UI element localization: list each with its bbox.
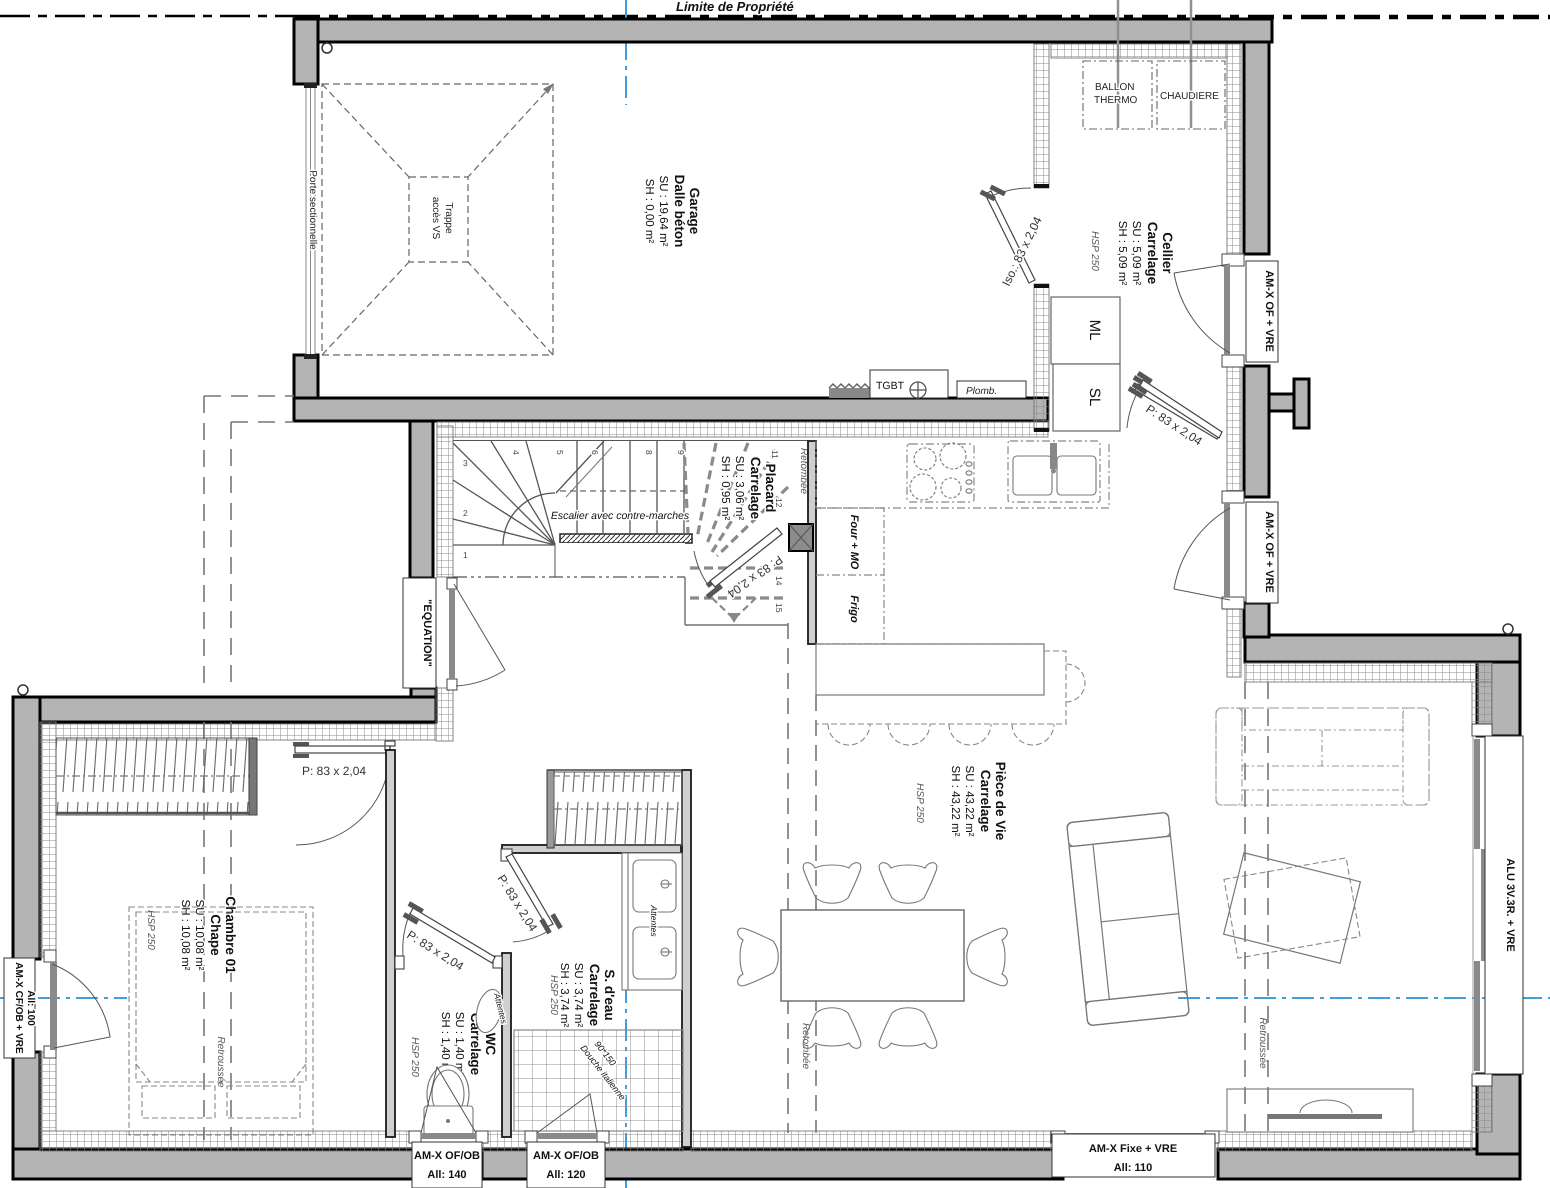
svg-text:HSP 250: HSP 250 [548,975,559,1015]
svg-text:15: 15 [774,603,784,613]
svg-text:AM-X OF/OB: AM-X OF/OB [533,1150,599,1162]
svg-text:HSP 250: HSP 250 [1089,231,1100,271]
svg-text:11: 11 [770,450,780,459]
svg-text:8: 8 [644,450,654,455]
svg-text:TGBT: TGBT [876,380,905,392]
svg-text:HSP 250: HSP 250 [914,783,925,823]
svg-text:AM-X OF + VRE: AM-X OF + VRE [1263,511,1275,593]
svg-text:AM-X Fixe + VRE: AM-X Fixe + VRE [1089,1143,1177,1155]
svg-text:HSP 250: HSP 250 [409,1037,420,1077]
svg-text:AM-X CF/OB + VRE: AM-X CF/OB + VRE [13,962,24,1054]
svg-text:THERMO: THERMO [1094,95,1138,106]
svg-text:2: 2 [463,508,468,518]
svg-text:Retroussée: Retroussée [1257,1017,1268,1069]
svg-text:ALU 3V.3R. + VRE: ALU 3V.3R. + VRE [1504,858,1516,951]
svg-text:1: 1 [463,550,468,560]
svg-text:P: 83 x 2,04: P: 83 x 2,04 [302,764,366,778]
svg-text:5: 5 [555,450,565,455]
svg-text:All: 100: All: 100 [25,990,36,1026]
svg-text:All: 110: All: 110 [1114,1162,1153,1174]
svg-text:Four + MO: Four + MO [848,515,860,570]
svg-text:ML: ML [1086,320,1103,341]
svg-text:Pièce de VieCarrelageSU : 43,2: Pièce de VieCarrelageSU : 43,22 m²SH : 4… [949,762,1008,841]
svg-text:S. d'eauCarrelageSU : 3,74 m²S: S. d'eauCarrelageSU : 3,74 m²SH : 3,74 m… [558,963,617,1028]
svg-text:4: 4 [511,450,521,455]
svg-text:Escalier avec contre-marches: Escalier avec contre-marches [551,510,690,522]
svg-text:6: 6 [590,450,600,455]
svg-text:All: 120: All: 120 [546,1169,585,1181]
svg-text:Retroussée: Retroussée [215,1036,226,1088]
svg-text:PlacardCarrelageSU : 3,06 m²SH: PlacardCarrelageSU : 3,06 m²SH : 0,95 m² [719,456,778,521]
svg-text:AM-X OF/OB: AM-X OF/OB [414,1150,480,1162]
svg-text:Limite de Propriété: Limite de Propriété [676,0,794,14]
svg-text:Porte sectionnelle: Porte sectionnelle [307,170,318,250]
svg-text:CHAUDIERE: CHAUDIERE [1160,91,1219,102]
svg-text:BALLON: BALLON [1095,82,1134,93]
svg-text:HSP 250: HSP 250 [145,910,156,950]
svg-text:Attentes: Attentes [649,904,659,937]
svg-text:14: 14 [774,576,784,586]
svg-text:3: 3 [463,458,468,468]
svg-text:Frigo: Frigo [848,595,860,623]
svg-text:"EQUATION": "EQUATION" [421,599,433,667]
svg-text:SL: SL [1086,388,1103,406]
svg-text:Plomb.: Plomb. [966,386,997,397]
svg-text:AM-X OF + VRE: AM-X OF + VRE [1263,270,1275,352]
svg-text:All: 140: All: 140 [427,1169,466,1181]
svg-text:Retombée: Retombée [800,1023,811,1070]
svg-text:9: 9 [676,450,686,455]
